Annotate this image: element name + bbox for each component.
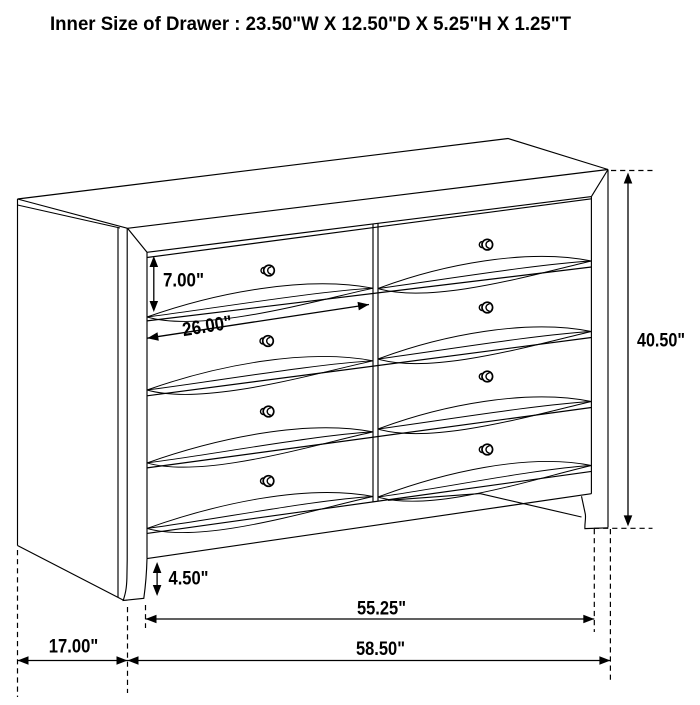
svg-text:55.25": 55.25" [357, 598, 406, 620]
svg-text:Inner Size of Drawer : 23.50"W: Inner Size of Drawer : 23.50"W X 12.50"D… [50, 13, 571, 35]
svg-text:17.00": 17.00" [49, 636, 98, 658]
svg-text:7.00": 7.00" [163, 270, 204, 292]
svg-text:58.50": 58.50" [356, 638, 405, 660]
svg-text:40.50": 40.50" [637, 330, 685, 352]
svg-text:4.50": 4.50" [169, 568, 209, 590]
